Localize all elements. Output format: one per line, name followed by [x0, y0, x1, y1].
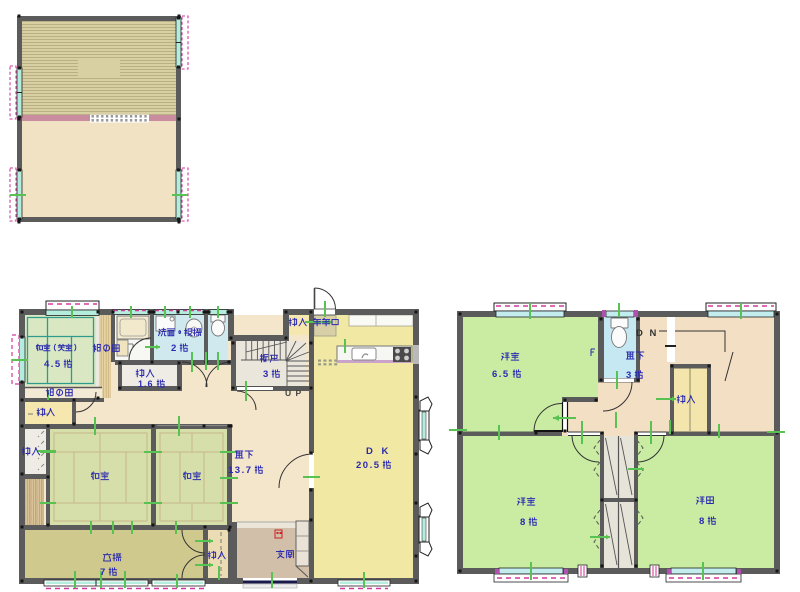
svg-text:D N: D N [636, 328, 658, 339]
svg-text:8: 8 [699, 516, 706, 527]
svg-text:U P: U P [285, 388, 302, 398]
svg-text:D K: D K [366, 446, 391, 457]
svg-text:13.7: 13.7 [228, 465, 253, 476]
svg-text:3: 3 [626, 370, 633, 381]
svg-text:7: 7 [100, 567, 107, 578]
svg-text:2: 2 [171, 343, 178, 354]
svg-text:20.5: 20.5 [356, 460, 381, 471]
svg-text:8: 8 [520, 517, 527, 528]
svg-text:4.5: 4.5 [44, 359, 62, 370]
svg-text:1.6: 1.6 [138, 379, 154, 389]
svg-text:3: 3 [263, 369, 270, 380]
svg-text:6.5: 6.5 [492, 369, 510, 380]
